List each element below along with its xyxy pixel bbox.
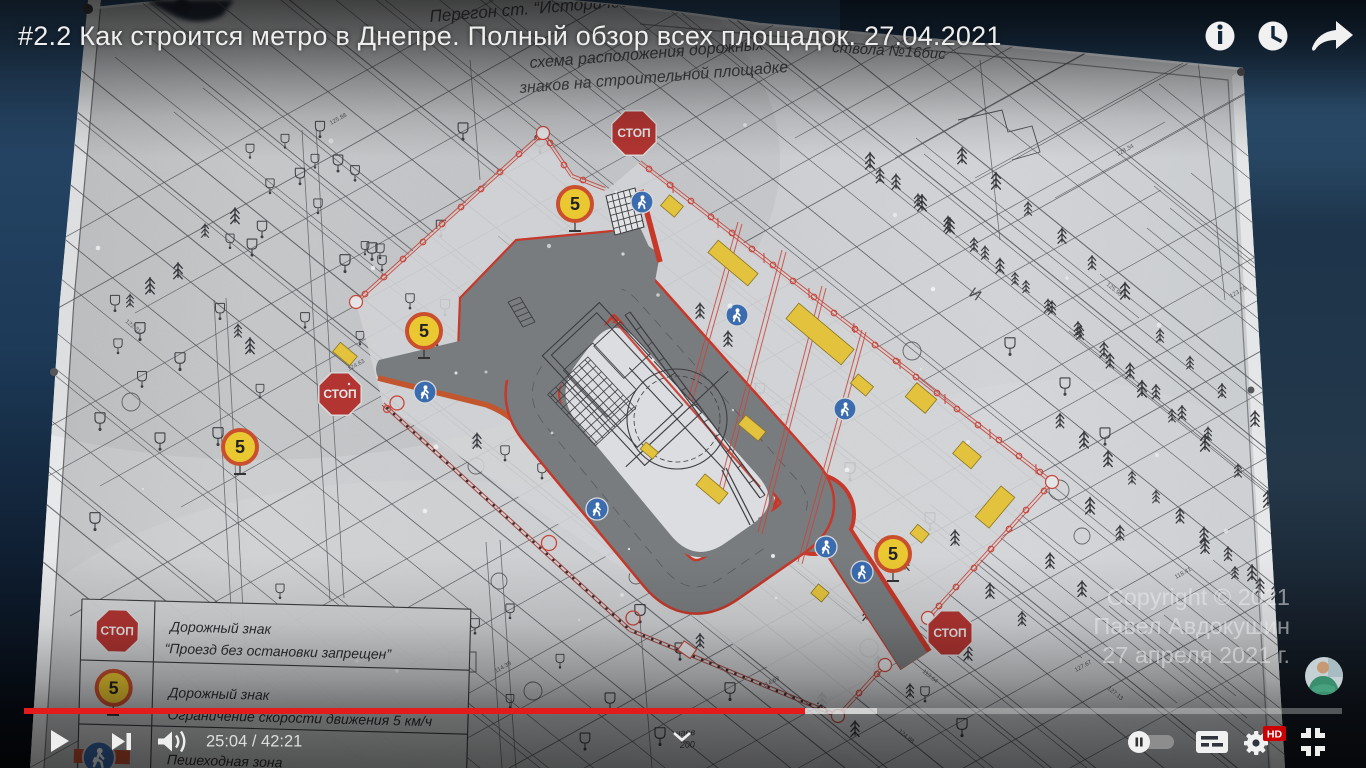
- svg-text:25:04 / 42:21: 25:04 / 42:21: [206, 733, 302, 751]
- svg-text:HD: HD: [1267, 729, 1283, 741]
- svg-text:СТОП: СТОП: [323, 387, 356, 401]
- svg-text:5: 5: [419, 321, 429, 341]
- svg-text:5: 5: [570, 194, 580, 214]
- svg-text:5: 5: [235, 437, 245, 457]
